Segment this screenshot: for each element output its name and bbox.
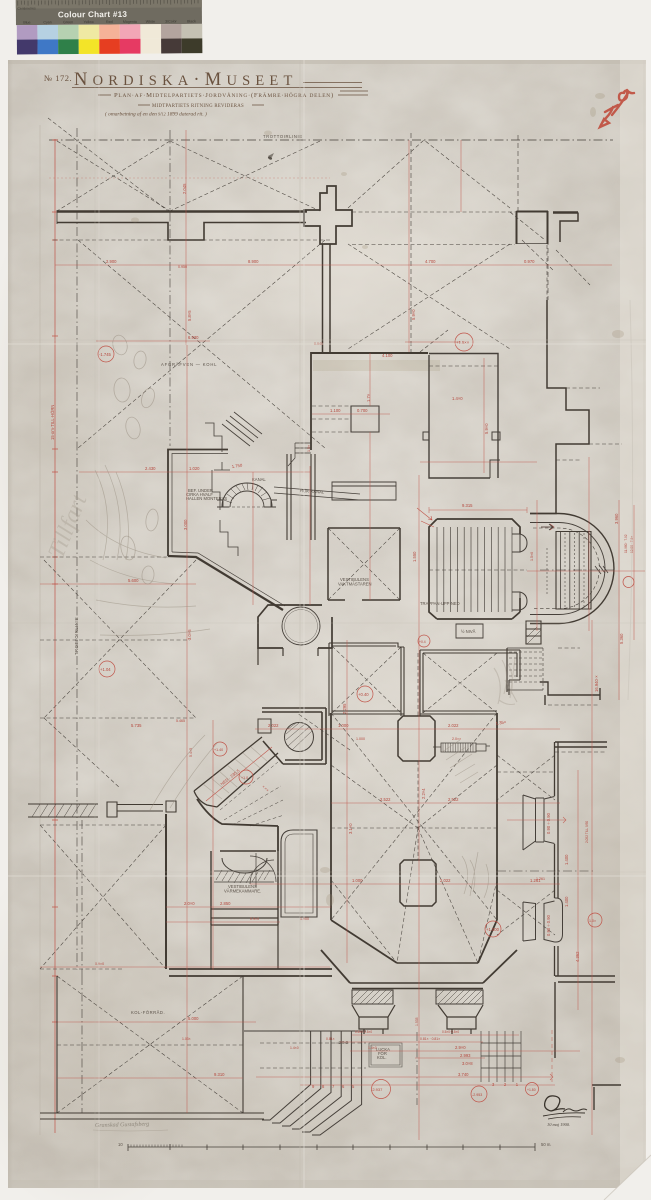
svg-text:0.90 ÷ 0.90: 0.90 ÷ 0.90 xyxy=(546,914,551,936)
svg-text:-2.937: -2.937 xyxy=(371,1087,383,1092)
svg-text:5.000: 5.000 xyxy=(188,1016,199,1021)
svg-text:5.8×5: 5.8×5 xyxy=(187,310,192,321)
svg-text:1.4×0: 1.4×0 xyxy=(368,1046,377,1050)
svg-text:1.400: 1.400 xyxy=(564,896,569,907)
svg-text:-1.745: -1.745 xyxy=(99,352,112,357)
svg-text:Centimetres: Centimetres xyxy=(17,7,36,11)
svg-text:2.522: 2.522 xyxy=(380,797,391,802)
svg-text:+1.0: +1.0 xyxy=(241,776,248,780)
svg-text:( omarbetning af en den 9/12 1: ( omarbetning af en den 9/12 1899 datera… xyxy=(105,111,207,118)
svg-text:4.352: 4.352 xyxy=(575,951,580,962)
svg-text:4.100: 4.100 xyxy=(382,353,393,358)
svg-text:2.0×0: 2.0×0 xyxy=(184,901,195,906)
svg-text:5.465: 5.465 xyxy=(176,719,185,723)
svg-text:Yellow: Yellow xyxy=(84,20,95,24)
svg-text:Cyan: Cyan xyxy=(43,20,51,24)
svg-text:2.850: 2.850 xyxy=(220,901,231,906)
svg-text:2.2×4: 2.2×4 xyxy=(421,788,426,799)
svg-text:MIDTPARTIETS RITNING REVIDERAS: MIDTPARTIETS RITNING REVIDERAS xyxy=(152,104,244,109)
svg-text:6.930: 6.930 xyxy=(188,335,199,340)
svg-text:Magenta: Magenta xyxy=(123,20,137,24)
svg-text:5.360: 5.360 xyxy=(619,633,624,644)
svg-text:16.940·×: 16.940·× xyxy=(594,675,599,692)
svg-text:+1.000: +1.000 xyxy=(486,927,500,932)
svg-text:3/Color: 3/Color xyxy=(165,20,177,24)
svg-text:2.052 TILL 9/50: 2.052 TILL 9/50 xyxy=(585,821,589,843)
svg-text:2.900: 2.900 xyxy=(106,259,117,264)
svg-text:5.4×5: 5.4×5 xyxy=(189,748,193,757)
svg-text:NORDISKA·MUSEET: NORDISKA·MUSEET xyxy=(74,70,298,90)
svg-text:15·om·TILL·HÖRN: 15·om·TILL·HÖRN xyxy=(50,405,55,440)
svg-text:Granskad Gustafsberg: Granskad Gustafsberg xyxy=(95,1121,149,1129)
svg-text:5.9×0: 5.9×0 xyxy=(484,423,489,434)
svg-text:2.9×0: 2.9×0 xyxy=(455,1045,466,1050)
svg-text:AFGRÄFVEN — KOHL: AFGRÄFVEN — KOHL xyxy=(161,362,217,367)
svg-text:10: 10 xyxy=(118,1142,123,1147)
svg-text:9.310: 9.310 xyxy=(214,1072,225,1077)
svg-text:VAKTMÄSTAREN: VAKTMÄSTAREN xyxy=(338,582,372,587)
svg-text:0.90 ÷ 0.90: 0.90 ÷ 0.90 xyxy=(546,812,551,834)
svg-text:2.022: 2.022 xyxy=(268,723,279,728)
svg-text:8.900: 8.900 xyxy=(248,259,259,264)
svg-text:0.81×: 0.81× xyxy=(326,1037,335,1041)
svg-text:1.4×0: 1.4×0 xyxy=(452,396,463,401)
svg-text:+0.4: +0.4 xyxy=(419,640,426,644)
svg-text:1.5×: 1.5× xyxy=(307,445,311,452)
svg-text:KOL-FÖRRÅD.: KOL-FÖRRÅD. xyxy=(131,1010,165,1015)
svg-text:TROTTOIRLINIE: TROTTOIRLINIE xyxy=(74,617,79,655)
svg-text:9.315: 9.315 xyxy=(462,503,473,508)
svg-text:3.960: 3.960 xyxy=(614,513,619,524)
svg-text:1.261: 1.261 xyxy=(536,877,545,881)
svg-text:11.980 · 7.92: 11.980 · 7.92 xyxy=(624,534,628,553)
svg-text:1.000: 1.000 xyxy=(338,723,349,728)
svg-text:White: White xyxy=(146,20,155,24)
svg-text:1.0×: 1.0× xyxy=(589,919,596,923)
svg-text:1.550: 1.550 xyxy=(412,551,417,562)
svg-text:KOL.: KOL. xyxy=(377,1055,387,1060)
svg-text:0.5×0·0.5×0: 0.5×0·0.5×0 xyxy=(355,1030,372,1034)
svg-text:+0.40: +0.40 xyxy=(358,692,369,697)
svg-text:2.522: 2.522 xyxy=(448,797,459,802)
svg-text:PLAN·AF·MIDTELPARTIETS·JORDVÅN: PLAN·AF·MIDTELPARTIETS·JORDVÅNING·(FRÄMR… xyxy=(114,91,334,99)
svg-text:Blue: Blue xyxy=(23,21,30,25)
svg-text:3 2 1: 3 2 1 xyxy=(492,1082,522,1087)
svg-text:0.5×0·0.5×0: 0.5×0·0.5×0 xyxy=(442,1030,459,1034)
svg-text:0.9×0: 0.9×0 xyxy=(250,917,259,921)
svg-text:Black: Black xyxy=(187,19,196,23)
svg-text:3.000: 3.000 xyxy=(183,519,188,530)
svg-text:1.100: 1.100 xyxy=(330,408,341,413)
svg-text:1.000: 1.000 xyxy=(356,737,365,741)
svg-text:10 maj 1900.: 10 maj 1900. xyxy=(547,1122,570,1127)
svg-text:Red: Red xyxy=(106,20,113,24)
svg-text:Colour Chart #13: Colour Chart #13 xyxy=(58,10,127,19)
svg-text:0.700: 0.700 xyxy=(357,408,368,413)
svg-text:2.430: 2.430 xyxy=(145,466,156,471)
svg-text:3.0×5: 3.0×5 xyxy=(187,629,192,640)
svg-text:½ NIVÅ: ½ NIVÅ xyxy=(461,629,476,634)
svg-text:5.600: 5.600 xyxy=(128,578,139,583)
svg-text:2.295: 2.295 xyxy=(342,703,347,714)
svg-text:+1.40: +1.40 xyxy=(214,748,223,752)
svg-text:KANAL: KANAL xyxy=(252,477,266,482)
svg-text:5.735: 5.735 xyxy=(131,723,142,728)
svg-text:50 m.: 50 m. xyxy=(541,1142,551,1147)
svg-text:5.9×0: 5.9×0 xyxy=(411,309,416,320)
svg-text:2.022: 2.022 xyxy=(448,723,459,728)
svg-text:0.81× · 0.81×: 0.81× · 0.81× xyxy=(420,1037,440,1041)
svg-text:4.700: 4.700 xyxy=(425,259,436,264)
svg-text:Green: Green xyxy=(63,20,73,24)
svg-text:-2.953: -2.953 xyxy=(472,1093,482,1097)
svg-text:0.970: 0.970 xyxy=(524,259,535,264)
svg-text:+1.04: +1.04 xyxy=(100,667,111,672)
svg-text:2.022: 2.022 xyxy=(440,878,451,883)
svg-text:1.020: 1.020 xyxy=(189,466,200,471)
svg-text:1.400: 1.400 xyxy=(564,854,569,865)
svg-text:№ 172.: № 172. xyxy=(44,73,72,83)
svg-text:2.993: 2.993 xyxy=(460,1053,471,1058)
svg-text:3.1×0: 3.1×0 xyxy=(348,823,353,834)
svg-text:1.535: 1.535 xyxy=(415,1017,419,1026)
svg-text:TRAPPAN·UPP·NED: TRAPPAN·UPP·NED xyxy=(420,601,460,606)
svg-text:0.950: 0.950 xyxy=(178,265,187,269)
svg-text:VÄRMEKAMMARE.: VÄRMEKAMMARE. xyxy=(224,889,261,894)
svg-text:1.5×0: 1.5×0 xyxy=(530,552,534,561)
svg-text:3.0×8: 3.0×8 xyxy=(462,1061,473,1066)
svg-text:1.03×: 1.03× xyxy=(182,1037,191,1041)
svg-text:+1.80: +1.80 xyxy=(527,1088,536,1092)
svg-text:3.740: 3.740 xyxy=(458,1072,469,1077)
svg-text:=2.8-3: =2.8-3 xyxy=(336,1040,349,1045)
svg-text:1.4×0: 1.4×0 xyxy=(290,1046,299,1050)
svg-text:2.045: 2.045 xyxy=(182,183,187,194)
svg-text:1.000: 1.000 xyxy=(352,878,363,883)
svg-text:1.7×: 1.7× xyxy=(366,393,371,402)
